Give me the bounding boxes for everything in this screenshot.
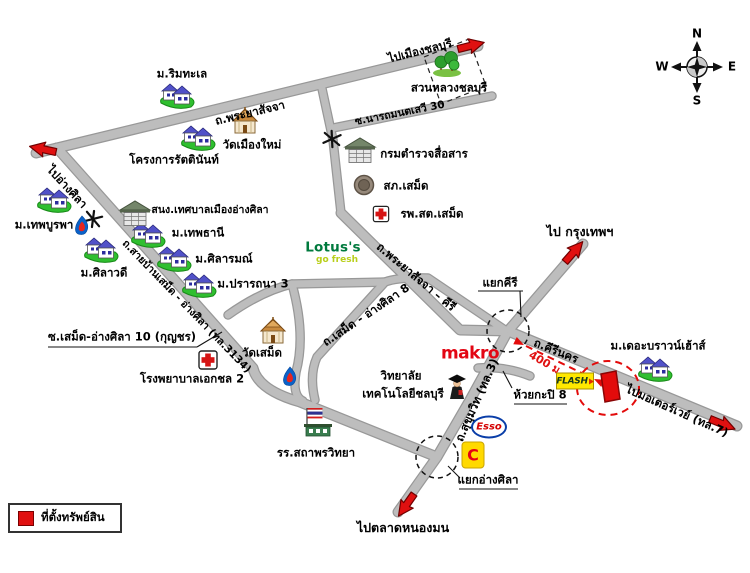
place-label-silawadee: ม.ศิลาวดี [81, 267, 128, 280]
place-label-prattana: ม.ปรารถนา 3 [217, 278, 288, 291]
police-station-icon [355, 176, 374, 195]
place-label-municipal: สนง.เทศบาลเมืองอ่างศิลา [151, 205, 268, 217]
road-phraya-sajja [57, 46, 478, 148]
makro-logo: makro [441, 345, 499, 364]
compass-w: W [655, 60, 668, 73]
place-label-police-comm: กรมตำรวจสื่อสาร [380, 148, 468, 161]
compass-n: N [692, 27, 702, 40]
place-label-samet-health: รพ.สต.เสม็ด [401, 208, 464, 221]
legend-property-swatch [18, 511, 34, 526]
village-icon [132, 223, 165, 247]
big-c-logo: C [462, 442, 485, 469]
legend-property-label: ที่ตั้งทรัพย์สิน [41, 509, 105, 527]
village-icon [183, 273, 216, 297]
place-label-college-line2: เทคโนโลยีชลบุรี [362, 388, 444, 401]
government-building-icon [120, 201, 150, 226]
compass-rose-icon [671, 41, 723, 93]
place-label-wat-samet: วัดเสม็ด [242, 347, 282, 360]
location-map: ถ.พระยาสัจจา ซ.นารถมนตเสวี 30 ถ.พระยาสัจ… [0, 0, 750, 573]
place-label-wat-muang-mai: วัดเมืองใหม่ [223, 139, 282, 152]
junction-label-angsila: แยกอ่างศิลา [458, 474, 519, 487]
place-label-samet-police: สภ.เสม็ด [384, 180, 429, 193]
map-canvas [0, 0, 750, 573]
flash-logo: FLASH [556, 373, 594, 390]
health-station-icon [373, 206, 388, 221]
village-icon [161, 84, 194, 108]
village-icon [85, 238, 118, 262]
esso-logo: Esso [471, 416, 507, 439]
lotus-tagline: go fresh [316, 256, 358, 266]
flash-arrow-icon [589, 378, 594, 384]
place-label-rim-talay: ม.ริมทะเล [157, 68, 207, 81]
temple-icon [261, 317, 285, 343]
place-label-college-line1: วิทยาลัย [380, 370, 421, 383]
direction-label-nongmon: ไปตลาดหนองมน [357, 521, 449, 535]
property-marker [601, 371, 620, 402]
government-building-icon [345, 138, 375, 163]
gas-station-icon [75, 216, 87, 235]
place-label-thep-burapha: ม.เทพบูรพา [15, 219, 74, 232]
place-label-rattinan: โครงการรัตตินันท์ [129, 154, 219, 167]
place-label-aikchol: โรงพยาบาลเอกชล 2 [140, 373, 244, 386]
direction-label-bangkok: ไป กรุงเทพฯ [547, 225, 614, 239]
place-label-brown-house: ม.เดอะบราวน์เฮ้าส์ [610, 340, 705, 353]
place-label-sathaporn: รร.สถาพรวิทยา [277, 447, 355, 460]
compass-e: E [728, 60, 736, 73]
place-label-thep-thani: ม.เทพธานี [172, 227, 224, 240]
road-label-samed-angsila-10: ซ.เสม็ด-อ่างศิลา 10 (กุญชร) [48, 331, 196, 344]
graduate-icon [448, 375, 466, 400]
legend-box: ที่ตั้งทรัพย์สิน [8, 503, 122, 533]
village-icon [182, 126, 215, 150]
place-label-silarom: ม.ศิลารมณ์ [195, 253, 252, 266]
lotus-logo: Lotus's [305, 241, 361, 256]
place-label-suan-luang: สวนหลวงชลบุรี [411, 82, 487, 95]
village-icon [158, 247, 191, 271]
rail-crossing-icon [323, 130, 341, 148]
compass-s: S [693, 94, 702, 107]
hospital-icon [199, 351, 217, 369]
village-icon [639, 357, 672, 381]
junction-label-kiri: แยกคีรี [483, 277, 518, 290]
road-label-huai-kapi-8: ห้วยกะปิ 8 [513, 389, 566, 402]
